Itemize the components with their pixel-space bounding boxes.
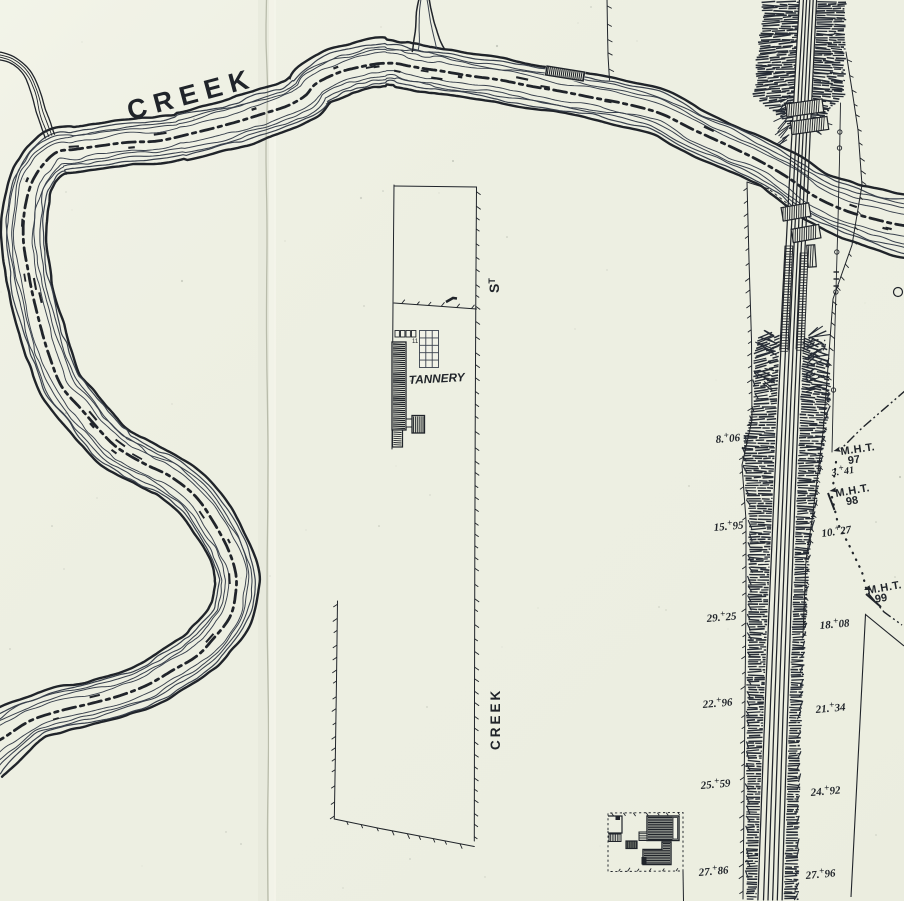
svg-text:TANNERY: TANNERY xyxy=(408,370,466,387)
svg-text:98: 98 xyxy=(845,494,859,508)
svg-text:11: 11 xyxy=(412,339,419,345)
svg-text:CREEK: CREEK xyxy=(488,688,503,750)
svg-text:99: 99 xyxy=(874,592,888,606)
